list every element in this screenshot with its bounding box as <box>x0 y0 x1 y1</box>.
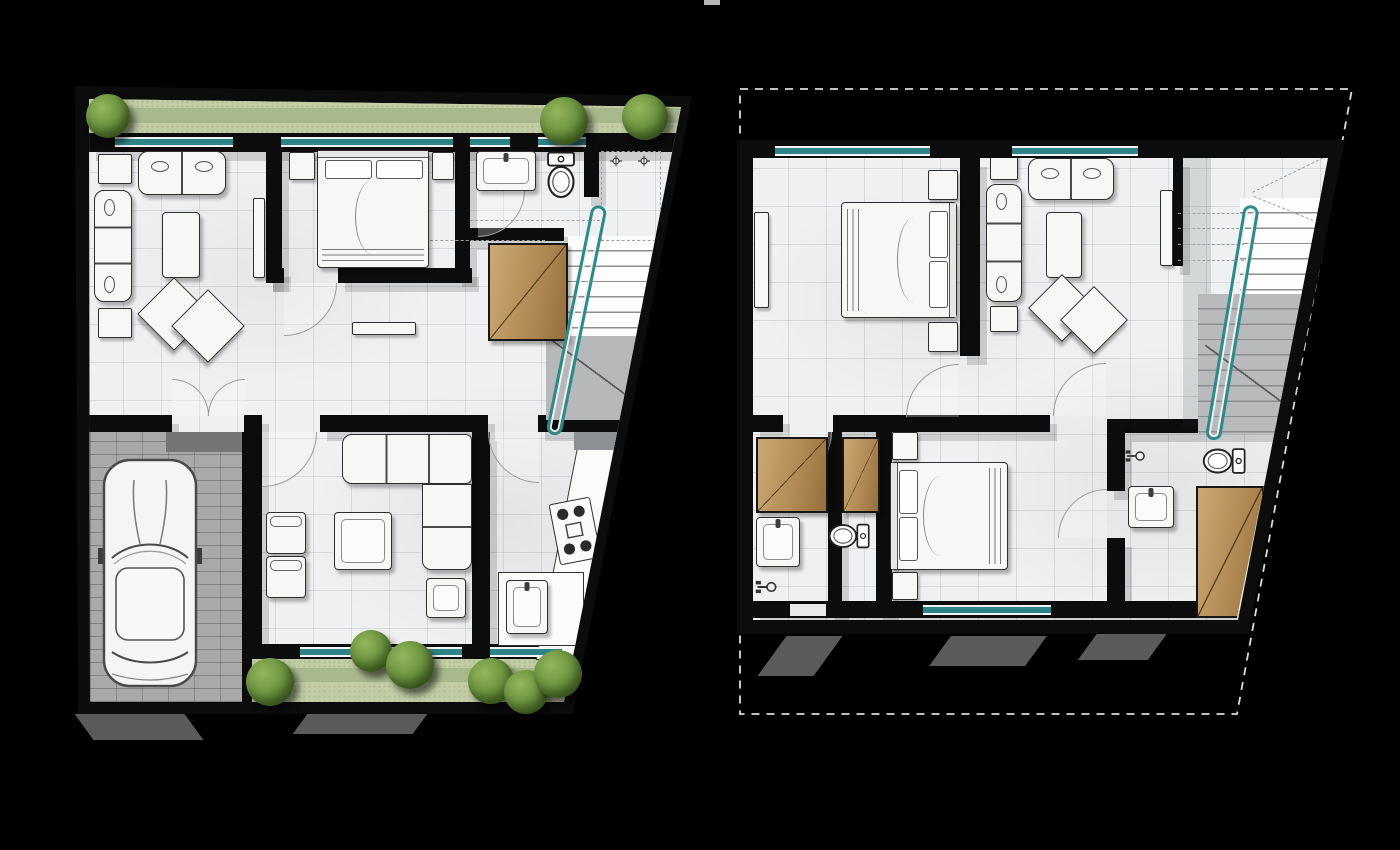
built-in-wardrobe <box>756 437 828 513</box>
toilet <box>832 514 874 554</box>
dresser <box>754 212 769 308</box>
shower-mixer-icon <box>1124 444 1148 468</box>
headroom-dashed-line <box>1178 228 1244 229</box>
double-bed <box>890 462 1008 570</box>
blanket-end-lines <box>989 468 1002 563</box>
ensuite-left-wall <box>1107 419 1125 491</box>
shower-mixer-icon <box>754 574 780 600</box>
shrub <box>386 641 434 689</box>
nightstand <box>928 170 958 200</box>
vanity-sink <box>1128 486 1174 528</box>
double-bed <box>841 202 957 318</box>
two-seat-sofa <box>1028 158 1114 200</box>
window <box>923 605 1051 615</box>
stair-wall <box>1173 158 1183 266</box>
pillow <box>899 470 918 514</box>
headroom-dashed-line <box>1178 213 1244 214</box>
window <box>775 146 930 156</box>
headboard <box>891 463 898 569</box>
toilet-icon <box>827 519 871 553</box>
blanket-end-lines <box>847 209 860 312</box>
nightstand <box>892 432 918 460</box>
headboard <box>949 203 956 317</box>
shrub <box>540 97 588 145</box>
shrub <box>534 650 582 698</box>
mid-wall <box>753 415 783 432</box>
built-in-wardrobe <box>842 437 880 513</box>
mid-wall <box>833 415 1050 432</box>
headroom-dashed-line <box>1178 244 1244 245</box>
shower-mixer <box>1124 444 1150 472</box>
shrub <box>622 94 668 140</box>
coffee-table <box>1046 212 1082 278</box>
nightstand <box>928 322 958 352</box>
side-table <box>990 306 1018 332</box>
pillow <box>899 517 918 561</box>
shrub <box>246 658 294 706</box>
toilet <box>1206 438 1252 478</box>
vanity-sink <box>756 517 800 567</box>
ensuite-left-wall <box>1107 538 1125 602</box>
three-seat-sofa <box>986 184 1022 302</box>
upper-floor-plan <box>0 0 1400 850</box>
window <box>1012 146 1138 156</box>
blanket-fold <box>923 476 959 557</box>
rear-wall-gap <box>790 604 826 616</box>
canvas: { "scene": { "type": "architectural floo… <box>0 0 1400 850</box>
pillow <box>929 261 948 308</box>
bedroom-sitting-wall <box>960 158 980 356</box>
shrub <box>86 94 130 138</box>
shower-mixer <box>754 574 780 602</box>
nightstand <box>892 572 918 600</box>
wall-console <box>1160 190 1173 266</box>
toilet-icon <box>1201 443 1247 479</box>
blanket-fold <box>897 217 932 304</box>
pillow <box>929 211 948 258</box>
